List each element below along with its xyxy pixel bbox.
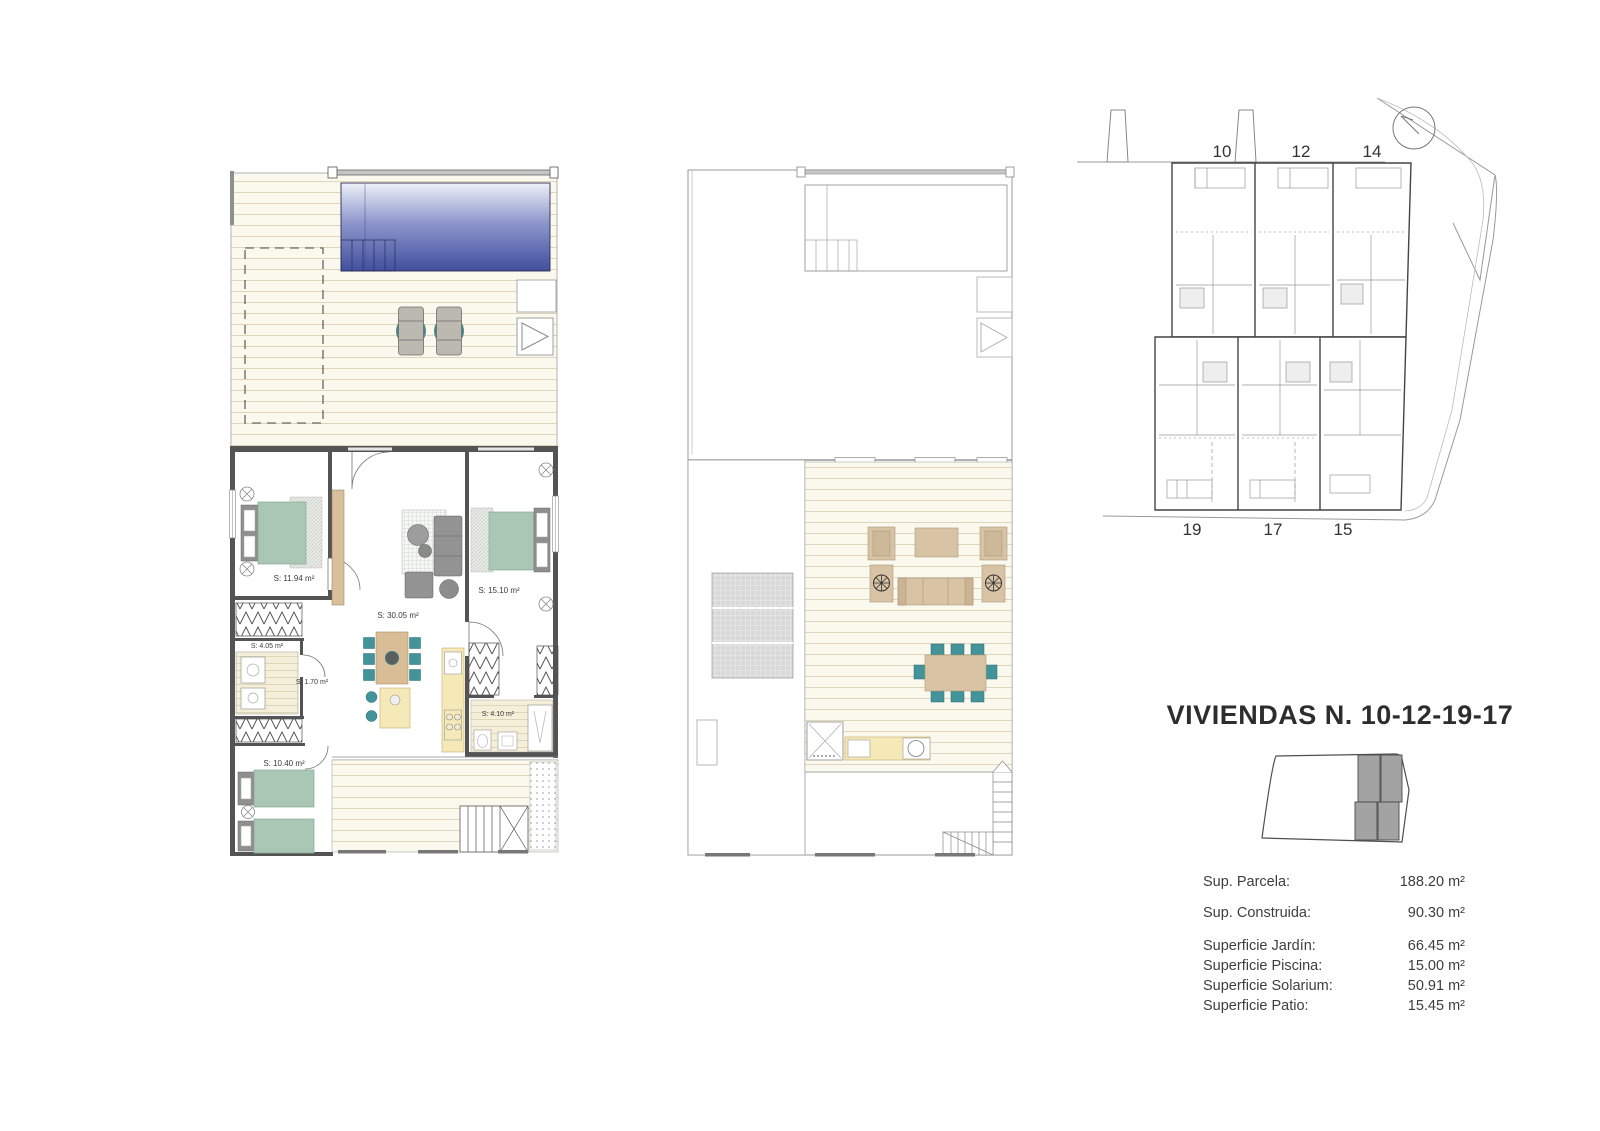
kitchen-counter <box>442 648 464 752</box>
sun-lounger <box>396 307 426 355</box>
living-room <box>402 510 462 599</box>
sun-lounger <box>434 307 464 355</box>
kitchen-island <box>366 688 410 728</box>
washbasin-icon <box>498 732 517 750</box>
coffee-table <box>408 525 429 546</box>
room-label: S: 4.05 m² <box>251 643 284 650</box>
unit-number: 10 <box>1213 142 1232 161</box>
room-label: S: 30.05 m² <box>377 611 419 620</box>
area-label: Sup. Construida: <box>1203 903 1311 923</box>
area-row: Superficie Piscina: 15.00 m² <box>1203 956 1465 976</box>
outdoor-shower-pad <box>977 277 1012 312</box>
area-label: Superficie Jardín: <box>1203 936 1316 956</box>
wardrobe <box>236 603 302 636</box>
wardrobe <box>537 646 558 695</box>
washing-machine-icon <box>903 738 930 759</box>
highlighted-units <box>1355 755 1402 840</box>
unit-number: 19 <box>1183 520 1202 539</box>
parasol-table <box>982 565 1005 602</box>
area-row: Sup. Parcela: 188.20 m² <box>1203 872 1465 892</box>
swimming-pool <box>341 183 550 271</box>
area-value: 50.91 m² <box>1408 976 1465 996</box>
sink-icon <box>848 740 870 757</box>
area-label: Superficie Piscina: <box>1203 956 1322 976</box>
bar-counter <box>845 737 930 760</box>
stairs <box>460 806 528 852</box>
area-row: Superficie Solarium: 50.91 m² <box>1203 976 1465 996</box>
unit-block-bottom <box>1155 337 1406 510</box>
area-label: Superficie Patio: <box>1203 996 1309 1016</box>
area-row: Sup. Construida: 90.30 m² <box>1203 903 1465 923</box>
area-value: 66.45 m² <box>1408 936 1465 956</box>
room-label: S: 15.10 m² <box>478 586 520 595</box>
floor-plan-sheet: S: 11.94 m² S: 4.05 m² S: 1.70 m² S: 30.… <box>0 0 1600 1131</box>
area-value: 188.20 m² <box>1400 872 1465 892</box>
outdoor-shower-icon <box>977 318 1012 357</box>
ground-floor-plan: S: 11.94 m² S: 4.05 m² S: 1.70 m² S: 30.… <box>228 160 560 862</box>
north-compass-icon <box>1393 107 1435 149</box>
ottoman <box>440 580 459 599</box>
room-label: S: 11.94 m² <box>274 574 315 583</box>
ceiling-fan-icon <box>242 806 255 819</box>
outdoor-table <box>915 528 958 557</box>
sink-icon <box>445 652 462 674</box>
armchair <box>405 572 433 598</box>
room-label: S: 1.70 m² <box>296 679 329 686</box>
area-label: Sup. Parcela: <box>1203 872 1290 892</box>
unit-number: 17 <box>1264 520 1283 539</box>
room-label: S: 4.10 m² <box>482 711 515 718</box>
unit-locator-diagram <box>1245 748 1420 848</box>
wardrobe <box>236 719 302 742</box>
sofa <box>434 516 462 576</box>
outdoor-sofa <box>898 578 973 605</box>
unit-number: 14 <box>1363 142 1382 161</box>
solarium-plan <box>685 160 1015 862</box>
area-label: Superficie Solarium: <box>1203 976 1333 996</box>
area-value: 15.45 m² <box>1408 996 1465 1016</box>
bedroom-1 <box>240 487 322 576</box>
sheet-title: VIVIENDAS N. 10-12-19-17 <box>1135 700 1545 731</box>
unit-number: 15 <box>1334 520 1353 539</box>
area-row: Superficie Patio: 15.45 m² <box>1203 996 1465 1016</box>
pergola-grid <box>688 460 805 855</box>
area-row: Superficie Jardín: 66.45 m² <box>1203 936 1465 956</box>
shower-tray <box>807 722 843 760</box>
room-label: S: 10.40 m² <box>263 759 305 768</box>
toilet-icon <box>474 730 491 750</box>
area-value: 15.00 m² <box>1408 956 1465 976</box>
unit-block-top <box>1172 163 1411 337</box>
patio-deck <box>332 760 558 854</box>
bedroom-3 <box>238 770 314 853</box>
wardrobe <box>469 643 499 695</box>
sliding-panel <box>332 490 344 605</box>
bathroom-1 <box>236 652 298 714</box>
area-table: Sup. Parcela: 188.20 m² Sup. Construida:… <box>1203 872 1465 1016</box>
bathtub-icon <box>528 705 552 751</box>
bathroom-2 <box>471 700 553 752</box>
parasol-table <box>870 565 893 602</box>
coffee-table <box>419 545 432 558</box>
unit-number: 12 <box>1292 142 1311 161</box>
site-plan: 10 12 14 19 17 15 <box>1075 80 1525 550</box>
dining-table <box>364 632 421 684</box>
area-value: 90.30 m² <box>1408 903 1465 923</box>
pool-outline <box>805 185 1007 271</box>
